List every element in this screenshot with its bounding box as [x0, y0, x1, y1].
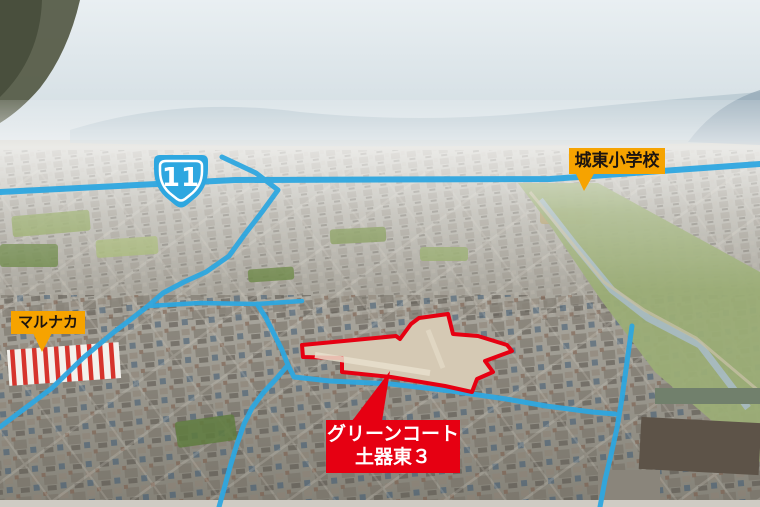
site-label: グリーンコート 土器東３	[326, 420, 460, 473]
site-label-line1: グリーンコート	[326, 423, 460, 446]
marunaka-label-text: マルナカ	[18, 313, 78, 331]
commercial-roof-2	[655, 388, 760, 404]
marunaka-label: マルナカ	[11, 311, 85, 334]
aerial-photo-map: 11 城東小学校 マルナカ グリーンコート 土器東３	[0, 0, 760, 507]
school-label-text: 城東小学校	[575, 151, 660, 171]
haze	[0, 100, 760, 290]
commercial-roof-1	[639, 417, 760, 475]
site-label-line2: 土器東３	[326, 446, 460, 469]
route-badge-number: 11	[154, 163, 208, 193]
bottom-road	[0, 500, 760, 507]
school-label: 城東小学校	[569, 148, 665, 174]
